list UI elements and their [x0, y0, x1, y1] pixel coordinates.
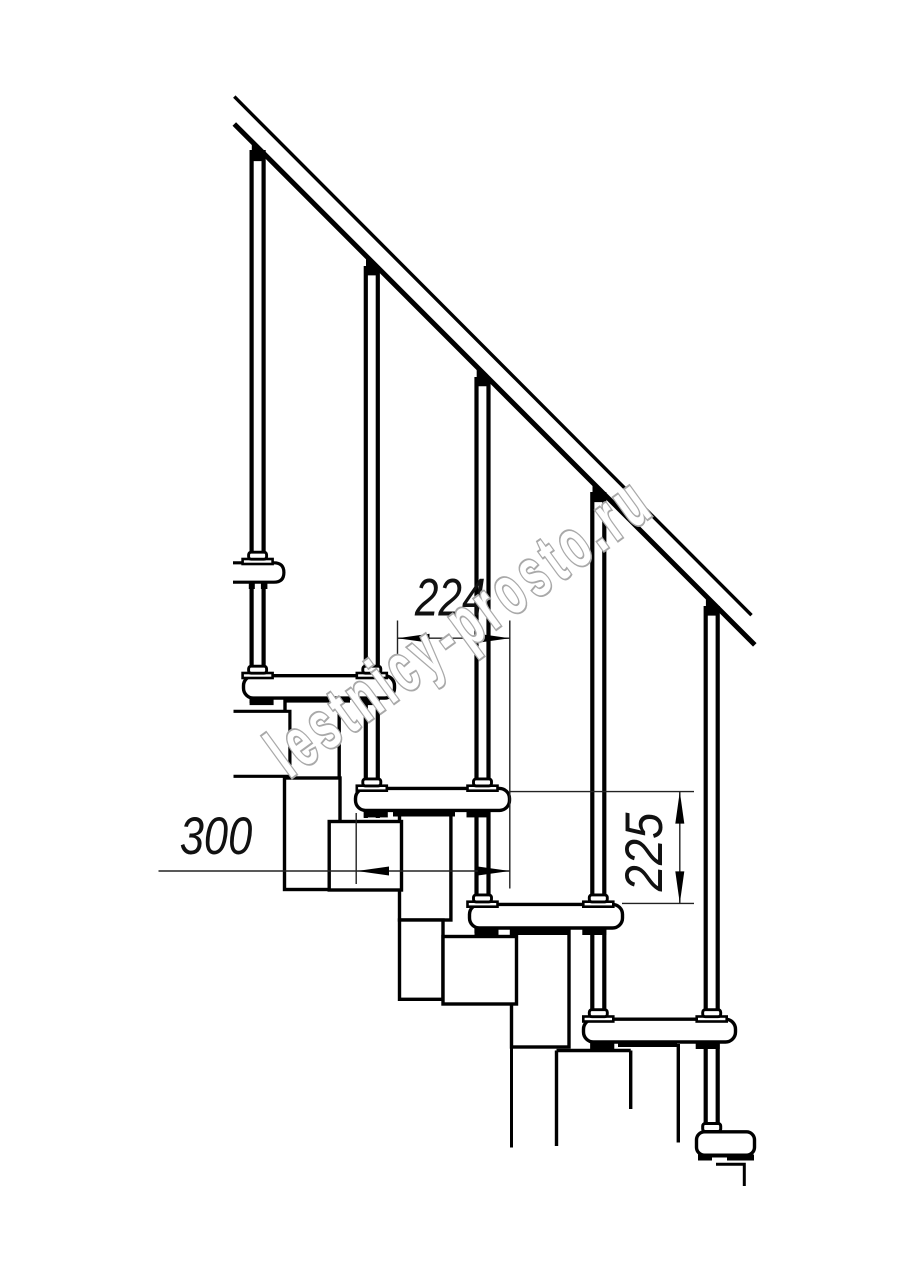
svg-text:300: 300 — [180, 807, 253, 866]
svg-text:225: 225 — [614, 812, 673, 893]
